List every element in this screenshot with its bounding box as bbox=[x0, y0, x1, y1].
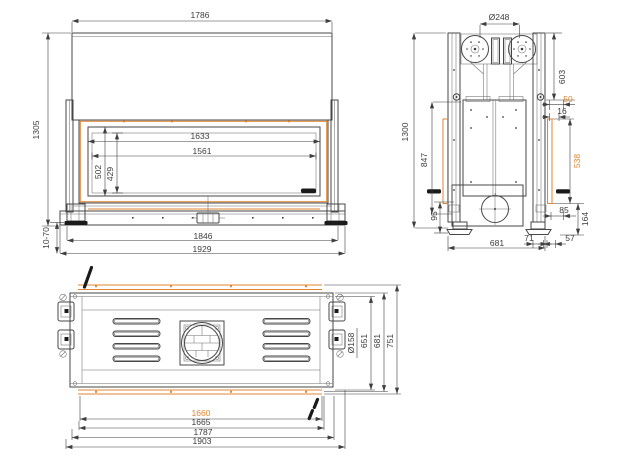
dim-side-depth: 681 bbox=[490, 239, 504, 248]
dim-front-glass-inner-h: 429 bbox=[106, 167, 115, 181]
side-view bbox=[414, 24, 584, 251]
plan-dimensions bbox=[66, 285, 401, 449]
dim-plan-overall-width: 1903 bbox=[193, 437, 212, 446]
dim-side-frame-offset: 16 bbox=[557, 107, 566, 116]
front-glass-inner bbox=[92, 133, 316, 193]
dim-front-top-width: 1786 bbox=[191, 11, 210, 20]
side-front-rail bbox=[533, 33, 545, 222]
dim-side-rear-offset: 85 bbox=[559, 206, 568, 215]
dim-front-leg-range: 10-70 bbox=[42, 227, 51, 249]
dim-side-top-section: 603 bbox=[558, 70, 567, 84]
dim-side-offset-57: 57 bbox=[565, 234, 574, 243]
section-mark-bottom bbox=[309, 400, 317, 419]
side-glass-strip-rear bbox=[443, 119, 448, 204]
dim-side-base-height: 164 bbox=[581, 212, 590, 226]
dim-side-foot-height: 95 bbox=[430, 211, 439, 220]
side-glass-strip-front bbox=[548, 119, 553, 204]
front-right-foot bbox=[325, 204, 348, 225]
side-rear-rail bbox=[448, 33, 460, 222]
pulley-right bbox=[509, 36, 536, 63]
plan-latches-right bbox=[329, 294, 345, 357]
front-door-handle bbox=[301, 189, 316, 194]
plan-view bbox=[58, 268, 401, 450]
plan-louvers-left bbox=[113, 319, 160, 362]
dim-plan-mid-depth: 681 bbox=[373, 334, 382, 348]
dim-front-glass-outer-w: 1633 bbox=[191, 132, 210, 141]
dim-front-height: 1305 bbox=[32, 121, 41, 140]
dim-plan-outer-depth: 751 bbox=[386, 334, 395, 348]
technical-drawing-page: 1786 1305 1633 1561 502 429 1846 1929 10… bbox=[0, 0, 624, 460]
dim-front-overall-width: 1929 bbox=[193, 245, 212, 254]
dim-side-height: 1300 bbox=[401, 123, 410, 142]
plan-body bbox=[70, 293, 333, 387]
dim-plan-inner-depth: 651 bbox=[360, 334, 369, 348]
drawing-canvas bbox=[0, 0, 624, 460]
dim-side-glass-strip: 538 bbox=[573, 154, 582, 168]
dim-plan-outlet-diameter: Ø158 bbox=[347, 333, 356, 354]
side-handle-rear bbox=[427, 189, 441, 193]
dim-side-flue-diameter: Ø248 bbox=[489, 13, 510, 22]
section-mark-top bbox=[85, 268, 92, 288]
front-left-foot bbox=[65, 204, 88, 225]
side-feet bbox=[447, 205, 551, 235]
plan-louvers-right bbox=[263, 319, 310, 362]
dim-side-offset-71: 71 bbox=[524, 234, 533, 243]
dim-front-base-width: 1846 bbox=[194, 232, 213, 241]
front-hood bbox=[72, 33, 332, 120]
dim-front-glass-outer-h: 502 bbox=[94, 165, 103, 179]
plan-latches-left bbox=[58, 294, 74, 357]
side-counterweight-panels bbox=[463, 97, 526, 197]
dim-side-front-offset: 50 bbox=[563, 95, 572, 104]
dim-front-glass-inner-w: 1561 bbox=[193, 147, 212, 156]
dim-side-opening-height: 847 bbox=[420, 153, 429, 167]
plan-flue-outlet bbox=[180, 321, 224, 365]
dim-plan-opening-width: 1665 bbox=[192, 418, 211, 427]
side-handle-front bbox=[556, 189, 570, 193]
side-vent-slot bbox=[492, 38, 500, 64]
pulley-left bbox=[462, 36, 489, 63]
